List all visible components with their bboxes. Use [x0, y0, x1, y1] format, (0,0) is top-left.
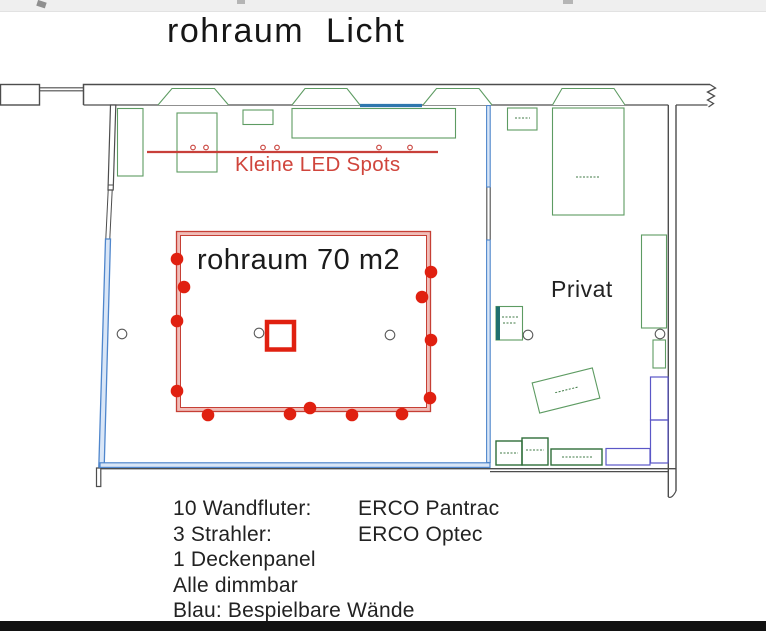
- window-bay: [553, 89, 626, 106]
- furniture-box: [177, 113, 217, 172]
- led-spot-marker: [408, 145, 413, 150]
- legend-row: 1 Deckenpanel: [173, 547, 415, 573]
- wall-break-zigzag: [708, 85, 716, 108]
- furniture-box: [243, 110, 273, 125]
- wandfluter-dot: [425, 266, 438, 279]
- legend-item: Alle dimmbar: [173, 573, 298, 599]
- wandfluter-dot: [171, 253, 184, 266]
- left-blue-wall: [99, 239, 111, 467]
- bottom-blue-wall: [100, 463, 490, 468]
- cropped-artifacts: [36, 0, 573, 8]
- right-wall-cap: [668, 491, 676, 497]
- legend-row: 10 Wandfluter: ERCO Pantrac: [173, 496, 415, 522]
- bed: [553, 108, 625, 215]
- legend-item: 10 Wandfluter:: [173, 496, 312, 522]
- privat-label: Privat: [551, 276, 613, 303]
- wandfluter-dot: [284, 408, 297, 421]
- kitchen-box: [522, 438, 548, 465]
- rohraum-label: rohraum 70 m2: [197, 244, 400, 277]
- wandfluter-dot: [425, 334, 438, 347]
- led-spot-marker: [191, 145, 196, 150]
- legend-block: 10 Wandfluter: ERCO Pantrac 3 Strahler: …: [173, 496, 415, 624]
- led-spot-markers: [191, 145, 413, 150]
- legend-item: 1 Deckenpanel: [173, 547, 316, 573]
- deckenpanel: [267, 322, 294, 350]
- column-circle: [254, 328, 264, 338]
- legend-row: Alle dimmbar: [173, 573, 415, 599]
- wandfluter-dot: [202, 409, 215, 422]
- window-bay: [423, 89, 492, 106]
- legend-item: 3 Strahler:: [173, 522, 272, 548]
- window-bay: [292, 89, 360, 106]
- divider-blue-wall-upper: [487, 106, 491, 188]
- column-circle: [523, 330, 533, 340]
- legend-product: ERCO Optec: [358, 522, 483, 548]
- bottom-bar: [0, 621, 766, 631]
- led-spot-marker: [377, 145, 382, 150]
- wandfluter-dots: [171, 253, 438, 422]
- wandfluter-dot: [346, 409, 359, 422]
- led-spot-marker: [261, 145, 266, 150]
- legend-row: 3 Strahler: ERCO Optec: [173, 522, 415, 548]
- wandfluter-dot: [396, 408, 409, 421]
- columns: [117, 328, 665, 340]
- stair-box: [606, 449, 650, 466]
- left-wall-thin: [106, 190, 108, 239]
- led-spots-label: Kleine LED Spots: [235, 153, 400, 177]
- wardrobe-strip: [496, 307, 500, 341]
- wandfluter-dot: [171, 385, 184, 398]
- wandfluter-dot: [424, 392, 437, 405]
- furniture-box: [642, 235, 667, 328]
- left-wall-stub: [97, 468, 101, 487]
- legend-product: ERCO Pantrac: [358, 496, 499, 522]
- stairs: [606, 377, 668, 465]
- furniture-box: [292, 109, 456, 139]
- deckenpanel-square: [267, 322, 294, 350]
- lighting-layer: [147, 152, 438, 412]
- stair-box: [651, 420, 669, 463]
- wandfluter-dot: [171, 315, 184, 328]
- column-circle: [655, 329, 665, 339]
- furniture-box: [118, 109, 144, 177]
- window-bay: [158, 89, 229, 106]
- strahler-dot: [178, 281, 191, 294]
- screenshot-root: rohraum Licht: [0, 0, 766, 631]
- window-bays: [158, 89, 625, 106]
- rotated-table: [532, 368, 600, 413]
- divider-blue-wall-lower: [487, 240, 491, 463]
- stair-box: [651, 377, 669, 420]
- wall-closet-top-left: [1, 85, 40, 106]
- led-spot-marker: [275, 145, 280, 150]
- strahler-dot: [304, 402, 317, 415]
- left-wall-upper: [108, 105, 116, 190]
- column-circle: [385, 330, 395, 340]
- strahler-dots: [178, 281, 429, 415]
- left-wall-thin: [110, 190, 112, 239]
- furniture-box: [508, 108, 538, 130]
- strahler-dot: [416, 291, 429, 304]
- furniture-box: [653, 340, 666, 368]
- column-circle: [117, 329, 127, 339]
- led-spot-marker: [204, 145, 209, 150]
